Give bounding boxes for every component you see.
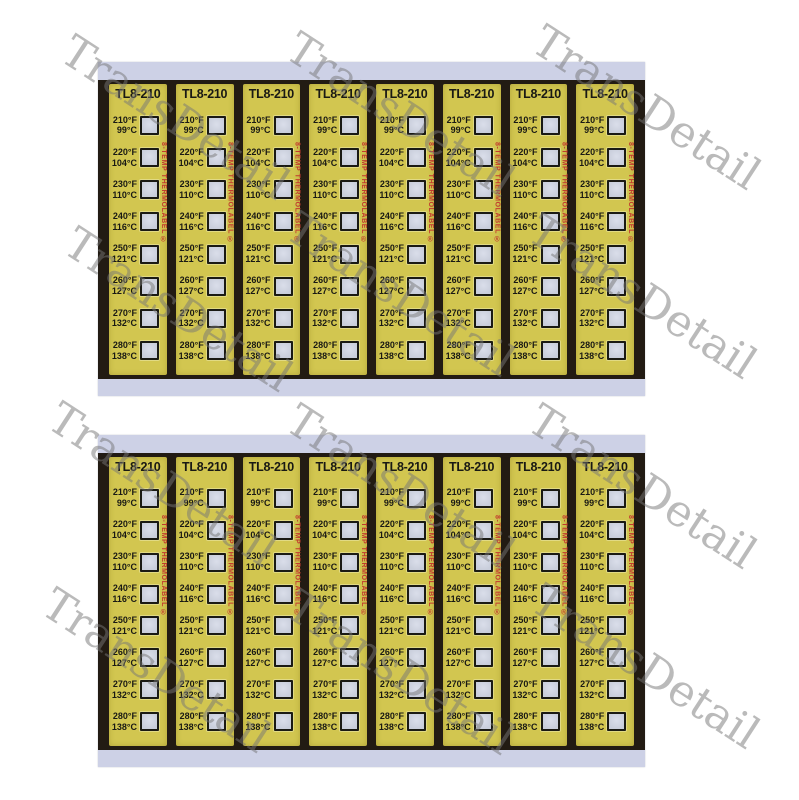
- temp-row: 220°F 104°C: [177, 519, 234, 541]
- temp-value: 250°F 121°C: [110, 243, 137, 265]
- temp-value: 230°F 110°C: [577, 551, 604, 573]
- temp-row: 250°F 121°C: [577, 243, 634, 265]
- temp-indicator-square: [607, 180, 626, 199]
- temp-value: 270°F 132°C: [577, 308, 604, 330]
- temp-celsius: 110°C: [110, 562, 137, 573]
- temp-row: 230°F 110°C: [377, 551, 434, 573]
- temp-indicator-square: [207, 245, 226, 264]
- temp-fahrenheit: 230°F: [310, 179, 337, 190]
- temp-value: 260°F 127°C: [244, 647, 271, 669]
- temp-celsius: 110°C: [310, 190, 337, 201]
- temp-celsius: 116°C: [577, 594, 604, 605]
- temp-fahrenheit: 270°F: [377, 308, 404, 319]
- temp-indicator-square: [140, 553, 159, 572]
- temp-value: 220°F 104°C: [310, 147, 337, 169]
- brand-vertical-text: 8-TEMP THERMOLABEL ®: [627, 515, 634, 617]
- temperature-rows: 210°F 99°C 220°F 104°C 230°F 110°C 240°F…: [176, 103, 234, 375]
- temp-indicator-square: [407, 521, 426, 540]
- temp-value: 280°F 138°C: [511, 340, 538, 362]
- temp-fahrenheit: 230°F: [177, 179, 204, 190]
- temp-fahrenheit: 230°F: [110, 551, 137, 562]
- temp-fahrenheit: 230°F: [310, 551, 337, 562]
- temp-celsius: 116°C: [177, 222, 204, 233]
- temp-value: 210°F 99°C: [511, 487, 538, 509]
- temp-row: 250°F 121°C: [244, 243, 301, 265]
- temp-value: 280°F 138°C: [110, 340, 137, 362]
- temp-fahrenheit: 220°F: [377, 147, 404, 158]
- temp-row: 260°F 127°C: [444, 275, 501, 297]
- temp-value: 260°F 127°C: [310, 275, 337, 297]
- temp-indicator-square: [541, 309, 560, 328]
- temp-indicator-square: [140, 180, 159, 199]
- temp-fahrenheit: 230°F: [444, 179, 471, 190]
- temp-celsius: 99°C: [444, 125, 471, 136]
- temp-indicator-square: [407, 585, 426, 604]
- temp-value: 210°F 99°C: [110, 487, 137, 509]
- temp-value: 230°F 110°C: [511, 179, 538, 201]
- temp-row: 270°F 132°C: [310, 308, 367, 330]
- temp-indicator-square: [607, 245, 626, 264]
- temp-indicator-square: [207, 521, 226, 540]
- temp-indicator-square: [541, 180, 560, 199]
- temp-value: 280°F 138°C: [444, 340, 471, 362]
- temp-celsius: 104°C: [244, 158, 271, 169]
- temp-indicator-square: [140, 616, 159, 635]
- temp-value: 280°F 138°C: [310, 340, 337, 362]
- temp-celsius: 116°C: [310, 594, 337, 605]
- temp-indicator-square: [340, 648, 359, 667]
- temp-row: 270°F 132°C: [177, 679, 234, 701]
- temperature-rows: 210°F 99°C 220°F 104°C 230°F 110°C 240°F…: [243, 103, 301, 375]
- temp-value: 210°F 99°C: [244, 487, 271, 509]
- temp-celsius: 104°C: [577, 530, 604, 541]
- temp-indicator-square: [541, 148, 560, 167]
- temp-value: 270°F 132°C: [377, 308, 404, 330]
- temp-indicator-square: [607, 553, 626, 572]
- temp-value: 220°F 104°C: [177, 519, 204, 541]
- temp-indicator-square: [340, 309, 359, 328]
- temp-celsius: 121°C: [177, 626, 204, 637]
- temp-row: 210°F 99°C: [577, 115, 634, 137]
- temp-fahrenheit: 210°F: [444, 115, 471, 126]
- temp-value: 270°F 132°C: [310, 679, 337, 701]
- temp-celsius: 110°C: [444, 190, 471, 201]
- temp-value: 210°F 99°C: [177, 487, 204, 509]
- temp-indicator-square: [474, 180, 493, 199]
- temp-indicator-square: [474, 341, 493, 360]
- temp-celsius: 104°C: [511, 158, 538, 169]
- temp-celsius: 138°C: [444, 722, 471, 733]
- temp-indicator-square: [207, 309, 226, 328]
- temp-celsius: 116°C: [110, 222, 137, 233]
- temp-indicator-square: [607, 585, 626, 604]
- temp-fahrenheit: 260°F: [244, 647, 271, 658]
- temp-celsius: 104°C: [110, 530, 137, 541]
- temp-value: 230°F 110°C: [310, 179, 337, 201]
- temp-row: 270°F 132°C: [244, 308, 301, 330]
- temp-celsius: 127°C: [177, 658, 204, 669]
- temp-indicator-square: [340, 116, 359, 135]
- temp-row: 270°F 132°C: [577, 679, 634, 701]
- brand-vertical-text: 8-TEMP THERMOLABEL ®: [293, 515, 300, 617]
- temperature-rows: 210°F 99°C 220°F 104°C 230°F 110°C 240°F…: [243, 476, 301, 746]
- temp-celsius: 99°C: [444, 498, 471, 509]
- temp-row: 250°F 121°C: [310, 243, 367, 265]
- temp-celsius: 116°C: [244, 222, 271, 233]
- temp-celsius: 116°C: [377, 222, 404, 233]
- strip-model-label: TL8-210: [176, 457, 234, 476]
- temp-indicator-square: [274, 341, 293, 360]
- temp-indicator-square: [474, 712, 493, 731]
- temp-fahrenheit: 270°F: [577, 679, 604, 690]
- temp-indicator-square: [474, 277, 493, 296]
- temp-celsius: 132°C: [577, 690, 604, 701]
- temp-value: 210°F 99°C: [310, 487, 337, 509]
- temp-fahrenheit: 210°F: [377, 487, 404, 498]
- temp-fahrenheit: 220°F: [511, 147, 538, 158]
- temp-celsius: 121°C: [110, 254, 137, 265]
- temp-row: 240°F 116°C: [377, 583, 434, 605]
- temp-celsius: 99°C: [511, 498, 538, 509]
- temp-celsius: 138°C: [110, 351, 137, 362]
- temp-fahrenheit: 280°F: [377, 340, 404, 351]
- temp-celsius: 104°C: [444, 158, 471, 169]
- temp-indicator-square: [274, 521, 293, 540]
- temp-value: 250°F 121°C: [577, 243, 604, 265]
- strip-model-label: TL8-210: [176, 84, 234, 103]
- temp-celsius: 104°C: [244, 530, 271, 541]
- temp-fahrenheit: 280°F: [377, 711, 404, 722]
- temp-fahrenheit: 240°F: [511, 211, 538, 222]
- temp-fahrenheit: 240°F: [511, 583, 538, 594]
- temp-row: 260°F 127°C: [310, 647, 367, 669]
- temp-fahrenheit: 220°F: [577, 147, 604, 158]
- temp-value: 280°F 138°C: [444, 711, 471, 733]
- temp-celsius: 138°C: [177, 722, 204, 733]
- strip-model-label: TL8-210: [576, 457, 634, 476]
- temp-row: 230°F 110°C: [577, 179, 634, 201]
- temp-value: 250°F 121°C: [511, 243, 538, 265]
- temp-celsius: 104°C: [444, 530, 471, 541]
- temp-row: 240°F 116°C: [577, 583, 634, 605]
- temp-row: 270°F 132°C: [577, 308, 634, 330]
- temp-indicator-square: [140, 212, 159, 231]
- temp-fahrenheit: 220°F: [444, 147, 471, 158]
- temp-value: 210°F 99°C: [244, 115, 271, 137]
- thermolabel-strip: TL8-210 210°F 99°C 220°F 104°C 230°F 110…: [443, 84, 501, 375]
- temp-celsius: 132°C: [110, 318, 137, 329]
- temp-fahrenheit: 260°F: [310, 275, 337, 286]
- temp-value: 260°F 127°C: [177, 647, 204, 669]
- temperature-rows: 210°F 99°C 220°F 104°C 230°F 110°C 240°F…: [376, 476, 434, 746]
- temp-row: 240°F 116°C: [577, 211, 634, 233]
- temp-celsius: 99°C: [511, 125, 538, 136]
- temp-row: 230°F 110°C: [177, 179, 234, 201]
- temp-row: 280°F 138°C: [444, 711, 501, 733]
- temp-fahrenheit: 210°F: [177, 487, 204, 498]
- temp-celsius: 104°C: [110, 158, 137, 169]
- temperature-rows: 210°F 99°C 220°F 104°C 230°F 110°C 240°F…: [309, 103, 367, 375]
- temp-value: 250°F 121°C: [377, 615, 404, 637]
- temp-fahrenheit: 210°F: [377, 115, 404, 126]
- thermolabel-strip: TL8-210 210°F 99°C 220°F 104°C 230°F 110…: [510, 457, 568, 746]
- temp-fahrenheit: 280°F: [244, 340, 271, 351]
- temperature-rows: 210°F 99°C 220°F 104°C 230°F 110°C 240°F…: [510, 476, 568, 746]
- temp-value: 270°F 132°C: [444, 308, 471, 330]
- temp-fahrenheit: 270°F: [110, 308, 137, 319]
- temp-fahrenheit: 220°F: [177, 519, 204, 530]
- temp-celsius: 127°C: [511, 658, 538, 669]
- temp-celsius: 99°C: [377, 125, 404, 136]
- temp-celsius: 132°C: [444, 690, 471, 701]
- temp-value: 280°F 138°C: [110, 711, 137, 733]
- temp-row: 220°F 104°C: [377, 147, 434, 169]
- temp-row: 230°F 110°C: [110, 551, 167, 573]
- temp-indicator-square: [140, 341, 159, 360]
- temp-row: 260°F 127°C: [110, 647, 167, 669]
- temp-fahrenheit: 250°F: [110, 243, 137, 254]
- temp-row: 280°F 138°C: [577, 340, 634, 362]
- temp-celsius: 99°C: [577, 125, 604, 136]
- temp-value: 280°F 138°C: [511, 711, 538, 733]
- temp-value: 210°F 99°C: [377, 115, 404, 137]
- temp-value: 280°F 138°C: [177, 340, 204, 362]
- temp-celsius: 110°C: [110, 190, 137, 201]
- temp-celsius: 121°C: [244, 626, 271, 637]
- temp-row: 260°F 127°C: [444, 647, 501, 669]
- temp-row: 230°F 110°C: [377, 179, 434, 201]
- temp-value: 210°F 99°C: [577, 115, 604, 137]
- temp-value: 210°F 99°C: [511, 115, 538, 137]
- temp-fahrenheit: 230°F: [577, 179, 604, 190]
- temp-fahrenheit: 270°F: [177, 679, 204, 690]
- temp-row: 230°F 110°C: [177, 551, 234, 573]
- temp-indicator-square: [607, 680, 626, 699]
- temp-fahrenheit: 260°F: [377, 647, 404, 658]
- temp-row: 270°F 132°C: [310, 679, 367, 701]
- temp-indicator-square: [474, 212, 493, 231]
- temp-indicator-square: [407, 648, 426, 667]
- temp-indicator-square: [207, 680, 226, 699]
- brand-vertical-text: 8-TEMP THERMOLABEL ®: [627, 142, 634, 244]
- temp-value: 270°F 132°C: [511, 679, 538, 701]
- temp-fahrenheit: 280°F: [444, 711, 471, 722]
- temp-fahrenheit: 210°F: [244, 487, 271, 498]
- temp-value: 230°F 110°C: [377, 179, 404, 201]
- thermolabel-strip: TL8-210 210°F 99°C 220°F 104°C 230°F 110…: [443, 457, 501, 746]
- brand-vertical-text: 8-TEMP THERMOLABEL ®: [227, 515, 234, 617]
- temp-row: 210°F 99°C: [444, 487, 501, 509]
- temp-indicator-square: [140, 277, 159, 296]
- temp-fahrenheit: 280°F: [110, 711, 137, 722]
- temp-fahrenheit: 250°F: [177, 243, 204, 254]
- temp-row: 220°F 104°C: [511, 147, 568, 169]
- temp-celsius: 127°C: [444, 286, 471, 297]
- temp-value: 220°F 104°C: [244, 519, 271, 541]
- temp-indicator-square: [274, 712, 293, 731]
- temp-celsius: 121°C: [310, 626, 337, 637]
- temp-fahrenheit: 250°F: [177, 615, 204, 626]
- temp-row: 260°F 127°C: [177, 275, 234, 297]
- brand-vertical-text: 8-TEMP THERMOLABEL ®: [560, 515, 567, 617]
- temp-row: 230°F 110°C: [310, 551, 367, 573]
- temp-celsius: 121°C: [244, 254, 271, 265]
- thermolabel-strip: TL8-210 210°F 99°C 220°F 104°C 230°F 110…: [176, 84, 234, 375]
- strip-model-label: TL8-210: [243, 457, 301, 476]
- temp-value: 210°F 99°C: [177, 115, 204, 137]
- temp-fahrenheit: 240°F: [110, 211, 137, 222]
- temp-row: 220°F 104°C: [244, 147, 301, 169]
- temp-value: 270°F 132°C: [377, 679, 404, 701]
- temp-row: 240°F 116°C: [177, 583, 234, 605]
- temp-celsius: 99°C: [310, 125, 337, 136]
- temp-value: 280°F 138°C: [377, 711, 404, 733]
- temp-celsius: 127°C: [310, 658, 337, 669]
- temp-indicator-square: [340, 616, 359, 635]
- temperature-rows: 210°F 99°C 220°F 104°C 230°F 110°C 240°F…: [109, 103, 167, 375]
- thermolabel-strip: TL8-210 210°F 99°C 220°F 104°C 230°F 110…: [109, 457, 167, 746]
- temp-value: 260°F 127°C: [511, 647, 538, 669]
- temp-row: 240°F 116°C: [377, 211, 434, 233]
- temp-row: 250°F 121°C: [577, 615, 634, 637]
- temp-indicator-square: [274, 309, 293, 328]
- temp-fahrenheit: 260°F: [444, 275, 471, 286]
- temp-indicator-square: [274, 212, 293, 231]
- temp-celsius: 116°C: [244, 594, 271, 605]
- temp-row: 210°F 99°C: [310, 487, 367, 509]
- temp-value: 210°F 99°C: [110, 115, 137, 137]
- temp-fahrenheit: 210°F: [511, 487, 538, 498]
- thermolabel-strip: TL8-210 210°F 99°C 220°F 104°C 230°F 110…: [376, 457, 434, 746]
- temp-celsius: 110°C: [177, 562, 204, 573]
- temp-indicator-square: [474, 648, 493, 667]
- temp-row: 220°F 104°C: [310, 519, 367, 541]
- thermolabel-strip: TL8-210 210°F 99°C 220°F 104°C 230°F 110…: [510, 84, 568, 375]
- brand-vertical-text: 8-TEMP THERMOLABEL ®: [427, 515, 434, 617]
- temp-fahrenheit: 250°F: [511, 243, 538, 254]
- temp-fahrenheit: 260°F: [177, 275, 204, 286]
- temp-fahrenheit: 210°F: [310, 115, 337, 126]
- temp-indicator-square: [140, 309, 159, 328]
- temp-fahrenheit: 280°F: [177, 340, 204, 351]
- temp-fahrenheit: 260°F: [110, 275, 137, 286]
- temp-celsius: 138°C: [377, 722, 404, 733]
- strip-model-label: TL8-210: [510, 84, 568, 103]
- temp-row: 250°F 121°C: [110, 615, 167, 637]
- temp-indicator-square: [407, 148, 426, 167]
- temp-indicator-square: [607, 212, 626, 231]
- temp-fahrenheit: 210°F: [511, 115, 538, 126]
- temp-fahrenheit: 280°F: [511, 711, 538, 722]
- temp-fahrenheit: 240°F: [444, 211, 471, 222]
- temp-celsius: 127°C: [444, 658, 471, 669]
- temp-indicator-square: [340, 680, 359, 699]
- temp-value: 240°F 116°C: [177, 211, 204, 233]
- temp-value: 230°F 110°C: [310, 551, 337, 573]
- temp-indicator-square: [474, 553, 493, 572]
- temp-value: 220°F 104°C: [444, 519, 471, 541]
- temp-celsius: 99°C: [110, 125, 137, 136]
- temp-celsius: 116°C: [444, 594, 471, 605]
- temp-row: 220°F 104°C: [577, 519, 634, 541]
- temperature-rows: 210°F 99°C 220°F 104°C 230°F 110°C 240°F…: [443, 103, 501, 375]
- temp-row: 270°F 132°C: [511, 679, 568, 701]
- temp-value: 240°F 116°C: [110, 583, 137, 605]
- temp-row: 240°F 116°C: [310, 583, 367, 605]
- temp-indicator-square: [407, 680, 426, 699]
- temp-celsius: 138°C: [244, 351, 271, 362]
- temp-fahrenheit: 220°F: [310, 147, 337, 158]
- temp-indicator-square: [340, 712, 359, 731]
- temp-indicator-square: [274, 180, 293, 199]
- temp-indicator-square: [541, 489, 560, 508]
- temp-row: 210°F 99°C: [110, 115, 167, 137]
- temp-value: 270°F 132°C: [177, 679, 204, 701]
- temp-row: 260°F 127°C: [577, 275, 634, 297]
- temp-row: 240°F 116°C: [511, 583, 568, 605]
- sheet-strip-area: TL8-210 210°F 99°C 220°F 104°C 230°F 110…: [98, 453, 645, 750]
- temp-fahrenheit: 240°F: [577, 583, 604, 594]
- temp-fahrenheit: 250°F: [577, 243, 604, 254]
- temp-row: 210°F 99°C: [177, 487, 234, 509]
- temp-value: 270°F 132°C: [511, 308, 538, 330]
- temp-celsius: 110°C: [511, 190, 538, 201]
- temp-celsius: 104°C: [177, 158, 204, 169]
- temp-value: 280°F 138°C: [577, 340, 604, 362]
- temp-fahrenheit: 250°F: [110, 615, 137, 626]
- temp-row: 250°F 121°C: [377, 243, 434, 265]
- temp-fahrenheit: 280°F: [444, 340, 471, 351]
- temp-celsius: 110°C: [244, 562, 271, 573]
- temperature-rows: 210°F 99°C 220°F 104°C 230°F 110°C 240°F…: [576, 476, 634, 746]
- temp-indicator-square: [207, 553, 226, 572]
- temp-celsius: 104°C: [310, 158, 337, 169]
- temp-row: 240°F 116°C: [444, 211, 501, 233]
- temp-celsius: 116°C: [511, 222, 538, 233]
- temp-value: 230°F 110°C: [577, 179, 604, 201]
- strip-model-label: TL8-210: [109, 457, 167, 476]
- temp-fahrenheit: 240°F: [377, 211, 404, 222]
- temp-fahrenheit: 230°F: [244, 551, 271, 562]
- temp-fahrenheit: 260°F: [577, 275, 604, 286]
- temp-celsius: 110°C: [310, 562, 337, 573]
- temp-celsius: 110°C: [444, 562, 471, 573]
- temp-value: 230°F 110°C: [177, 551, 204, 573]
- temp-value: 270°F 132°C: [244, 308, 271, 330]
- temp-celsius: 116°C: [377, 594, 404, 605]
- temp-fahrenheit: 240°F: [310, 583, 337, 594]
- thermolabel-strip: TL8-210 210°F 99°C 220°F 104°C 230°F 110…: [309, 84, 367, 375]
- temp-celsius: 127°C: [177, 286, 204, 297]
- temp-row: 240°F 116°C: [310, 211, 367, 233]
- temp-fahrenheit: 230°F: [444, 551, 471, 562]
- temp-row: 210°F 99°C: [377, 487, 434, 509]
- temp-value: 280°F 138°C: [177, 711, 204, 733]
- temp-row: 280°F 138°C: [244, 711, 301, 733]
- temp-indicator-square: [474, 116, 493, 135]
- temp-row: 280°F 138°C: [310, 711, 367, 733]
- temp-fahrenheit: 230°F: [377, 551, 404, 562]
- temp-fahrenheit: 250°F: [444, 243, 471, 254]
- temp-celsius: 121°C: [577, 254, 604, 265]
- product-photo: TL8-210 210°F 99°C 220°F 104°C 230°F 110…: [0, 0, 799, 800]
- temp-indicator-square: [140, 148, 159, 167]
- strip-model-label: TL8-210: [576, 84, 634, 103]
- temp-fahrenheit: 270°F: [511, 308, 538, 319]
- temp-celsius: 132°C: [444, 318, 471, 329]
- temp-value: 260°F 127°C: [444, 275, 471, 297]
- temp-fahrenheit: 280°F: [177, 711, 204, 722]
